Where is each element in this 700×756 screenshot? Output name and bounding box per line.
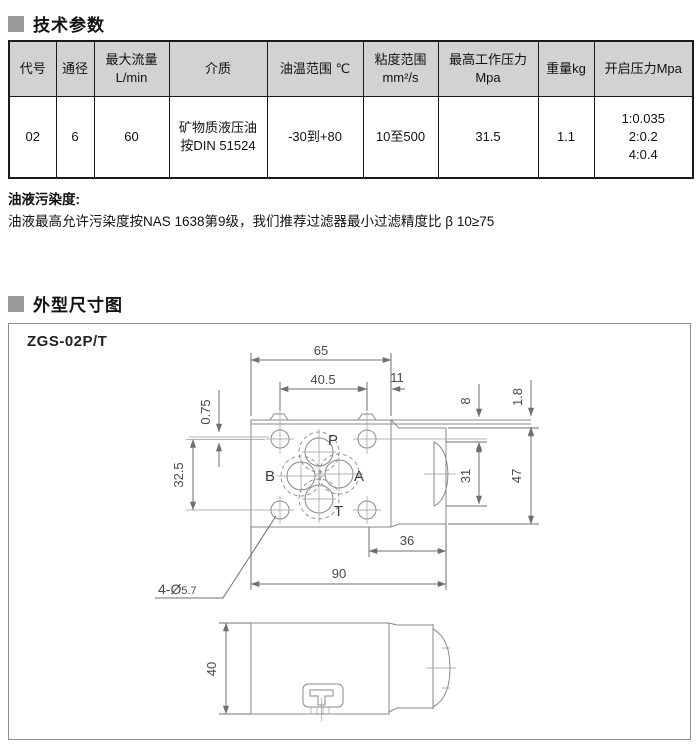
note-body: 油液最高允许污染度按NAS 1638第9级，我们推荐过滤器最小过滤精度比 β 1…: [8, 211, 494, 233]
header-viscosity: 粘度范围 mm²/s: [363, 41, 438, 96]
cell-oil-temp: -30到+80: [267, 96, 363, 178]
cell-bore: 6: [56, 96, 94, 178]
cell-weight: 1.1: [538, 96, 594, 178]
port-t-label: T: [334, 503, 343, 520]
dim-405-label: 40.5: [310, 372, 335, 387]
header-weight: 重量kg: [538, 41, 594, 96]
nameplate-outline: [303, 684, 343, 707]
port-p-label: P: [328, 432, 338, 449]
dim-325-label: 32.5: [171, 462, 186, 487]
dimension-drawing: P B A T 65 40.5 11 0.75 32.5: [9, 324, 690, 739]
spec-table: 代号 通径 最大流量 L/min 介质 油温范围 ℃ 粘度范围 mm²/s 最高…: [8, 40, 694, 179]
outline-dims-title: 外型尺寸图: [8, 291, 123, 316]
hole-bl-centerlines: [186, 496, 294, 524]
hole-br-centerlines: [353, 496, 381, 524]
port-b-label: B: [265, 468, 275, 485]
header-flow: 最大流量 L/min: [94, 41, 169, 96]
dimension-drawing-box: ZGS-02P/T: [8, 323, 691, 740]
header-medium: 介质: [169, 41, 267, 96]
side-view-body: [251, 623, 389, 714]
dim-40-label: 40: [204, 662, 219, 676]
header-oil-temp: 油温范围 ℃: [267, 41, 363, 96]
header-opening-pressure: 开启压力Mpa: [594, 41, 693, 96]
note-title: 油液污染度:: [8, 189, 494, 211]
port-b-centerlines: [277, 459, 325, 493]
cell-flow: 60: [94, 96, 169, 178]
outline-dims-title-text: 外型尺寸图: [33, 291, 123, 316]
hole-callout-label: 4-Ø5.7: [158, 581, 197, 597]
dim-40-ext: [219, 623, 251, 714]
header-code: 代号: [9, 41, 56, 96]
side-view-extension: [389, 623, 433, 712]
countersink-left: [270, 414, 288, 420]
cell-viscosity: 10至500: [363, 96, 438, 178]
tech-params-title-text: 技术参数: [33, 11, 105, 36]
dim-90-label: 90: [332, 566, 346, 581]
dim-11-label: 11: [390, 370, 404, 385]
port-t-centerlines: [302, 477, 336, 523]
cell-max-pressure: 31.5: [438, 96, 538, 178]
cell-code: 02: [9, 96, 56, 178]
port-a-label: A: [354, 468, 364, 485]
header-max-pressure: 最高工作压力 Mpa: [438, 41, 538, 96]
page: 技术参数 代号 通径 最大流量 L/min 介质 油温范围 ℃ 粘度范围 mm²…: [0, 0, 700, 756]
dim-075-label: 0.75: [198, 399, 213, 424]
dim-65-label: 65: [314, 343, 328, 358]
title-square-icon: [8, 296, 24, 312]
header-bore: 通径: [56, 41, 94, 96]
dim-18-label: 1.8: [510, 388, 525, 406]
title-square-icon: [8, 16, 24, 32]
cell-medium: 矿物质液压油 按DIN 51524: [169, 96, 267, 178]
table-data-row: 02 6 60 矿物质液压油 按DIN 51524 -30到+80 10至500…: [9, 96, 693, 178]
table-header-row: 代号 通径 最大流量 L/min 介质 油温范围 ℃ 粘度范围 mm²/s 最高…: [9, 41, 693, 96]
dim-47-label: 47: [509, 469, 524, 483]
cell-opening-pressure: 1:0.035 2:0.2 4:0.4: [594, 96, 693, 178]
hole-tl-centerlines: [266, 412, 294, 454]
valve-body-top-view: [391, 420, 446, 527]
dim-36-label: 36: [400, 533, 414, 548]
tech-params-title: 技术参数: [8, 11, 105, 36]
contamination-note: 油液污染度: 油液最高允许污染度按NAS 1638第9级，我们推荐过滤器最小过滤…: [8, 189, 494, 232]
dim-31-label: 31: [458, 469, 473, 483]
dim-8-label: 8: [458, 397, 473, 404]
